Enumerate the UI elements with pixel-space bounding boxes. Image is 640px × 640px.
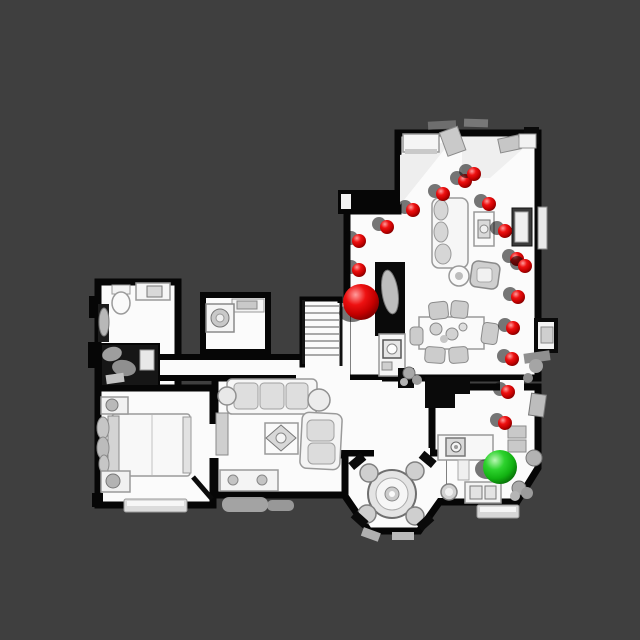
cabinet-br-door-2	[485, 486, 496, 499]
tv-screen	[515, 212, 528, 242]
chaise-cushion-2	[308, 443, 335, 464]
roof-debris-2	[464, 119, 488, 128]
sofa-arm-left	[218, 387, 236, 405]
lamp-south	[106, 474, 120, 488]
dining-item-3	[459, 323, 467, 331]
toilet-bowl	[112, 292, 130, 314]
plant-br-3	[510, 491, 520, 501]
waypoint-sphere	[467, 167, 481, 181]
sideboard-knob-1	[228, 475, 238, 485]
closet-shelf	[140, 350, 154, 370]
plant-mid-3	[400, 378, 408, 386]
waypoint-sphere	[482, 197, 496, 211]
waypoint-sphere	[406, 203, 420, 217]
dresser-top-shade	[405, 149, 437, 154]
right-object-1	[529, 393, 547, 417]
bed-headboard	[108, 416, 119, 474]
mat-2	[508, 440, 526, 452]
gap-stairs-hall	[305, 356, 337, 370]
appliance-lens-inner	[454, 445, 458, 449]
debris-living-2	[267, 500, 294, 511]
waypoint-sphere	[501, 385, 515, 399]
dining-chair-n2	[450, 300, 468, 318]
wall-nub-left-mid	[88, 342, 99, 368]
sofa-upper-cushion-1	[434, 200, 448, 220]
bay-table-center	[389, 491, 395, 497]
kitchen-sink-basin	[387, 344, 397, 354]
waypoint-sphere	[518, 259, 532, 273]
dining-chair-s2	[448, 346, 468, 363]
side-table-center	[455, 272, 463, 280]
dining-chair-n1	[428, 301, 449, 320]
wall-nub-bed-corner	[92, 493, 103, 507]
sofa-upper-cushion-2	[434, 222, 448, 242]
sofa-living-cushion-2	[260, 383, 284, 409]
bed-footboard	[183, 417, 191, 473]
stool-br-inner	[445, 488, 453, 496]
right-debris-2	[529, 359, 543, 373]
bed-bench-top	[127, 501, 184, 506]
waypoint-sphere	[352, 234, 366, 248]
debris-living-1	[222, 497, 268, 512]
shelf-top-right	[519, 134, 536, 148]
plant-br-2	[521, 487, 533, 499]
plant-mid-2	[412, 375, 422, 385]
bay-chair-1	[360, 464, 378, 482]
dining-item-1	[430, 323, 442, 335]
waypoint-sphere	[436, 187, 450, 201]
pillow-1	[97, 417, 109, 439]
cabinet-br-door-1	[470, 486, 482, 499]
washer-door-inner	[216, 314, 224, 322]
mat-1	[508, 426, 526, 438]
dining-chair-s1	[424, 346, 445, 363]
sofa-living-cushion-3	[286, 383, 308, 409]
laundry-items	[237, 301, 257, 309]
scan-viewer	[0, 0, 640, 640]
wall-ext-notch	[341, 194, 351, 209]
wall-nub-left-top	[89, 296, 98, 318]
armchair-upper-seat	[477, 268, 492, 282]
sofa-living-cushion-1	[234, 383, 258, 409]
waypoint-sphere	[498, 224, 512, 238]
waypoint-sphere	[511, 290, 525, 304]
lamp-north	[106, 399, 118, 411]
bay-chair-2	[406, 462, 424, 480]
dining-chair-w	[410, 327, 423, 345]
coffee-table-dish	[480, 225, 488, 233]
bench-br-top	[480, 507, 516, 512]
vanity-sink	[147, 286, 162, 297]
start-sphere	[343, 284, 379, 320]
waypoint-sphere	[352, 263, 366, 277]
tub-object	[99, 308, 109, 336]
coffee-table-bowl	[276, 433, 286, 443]
chaise-cushion-1	[307, 420, 334, 441]
shelf-living-left	[216, 413, 228, 455]
dining-chair-e	[481, 322, 500, 345]
waypoint-sphere	[506, 321, 520, 335]
alcove-right-object	[541, 327, 553, 343]
goal-sphere	[483, 450, 517, 484]
dining-item-4	[440, 335, 448, 343]
right-debris-3	[523, 373, 533, 383]
stair-edge	[302, 300, 305, 364]
console-leg	[458, 460, 469, 480]
debris-bay-2	[392, 532, 414, 540]
sofa-arm-right	[308, 389, 330, 411]
sofa-upper-cushion-3	[435, 244, 451, 264]
waypoint-sphere	[380, 220, 394, 234]
right-object-2	[526, 450, 542, 466]
sideboard-knob-2	[257, 475, 267, 485]
scene-canvas[interactable]	[0, 0, 640, 640]
kitchen-items	[382, 362, 392, 370]
waypoint-sphere	[505, 352, 519, 366]
window-right	[538, 207, 547, 249]
waypoint-sphere	[498, 416, 512, 430]
